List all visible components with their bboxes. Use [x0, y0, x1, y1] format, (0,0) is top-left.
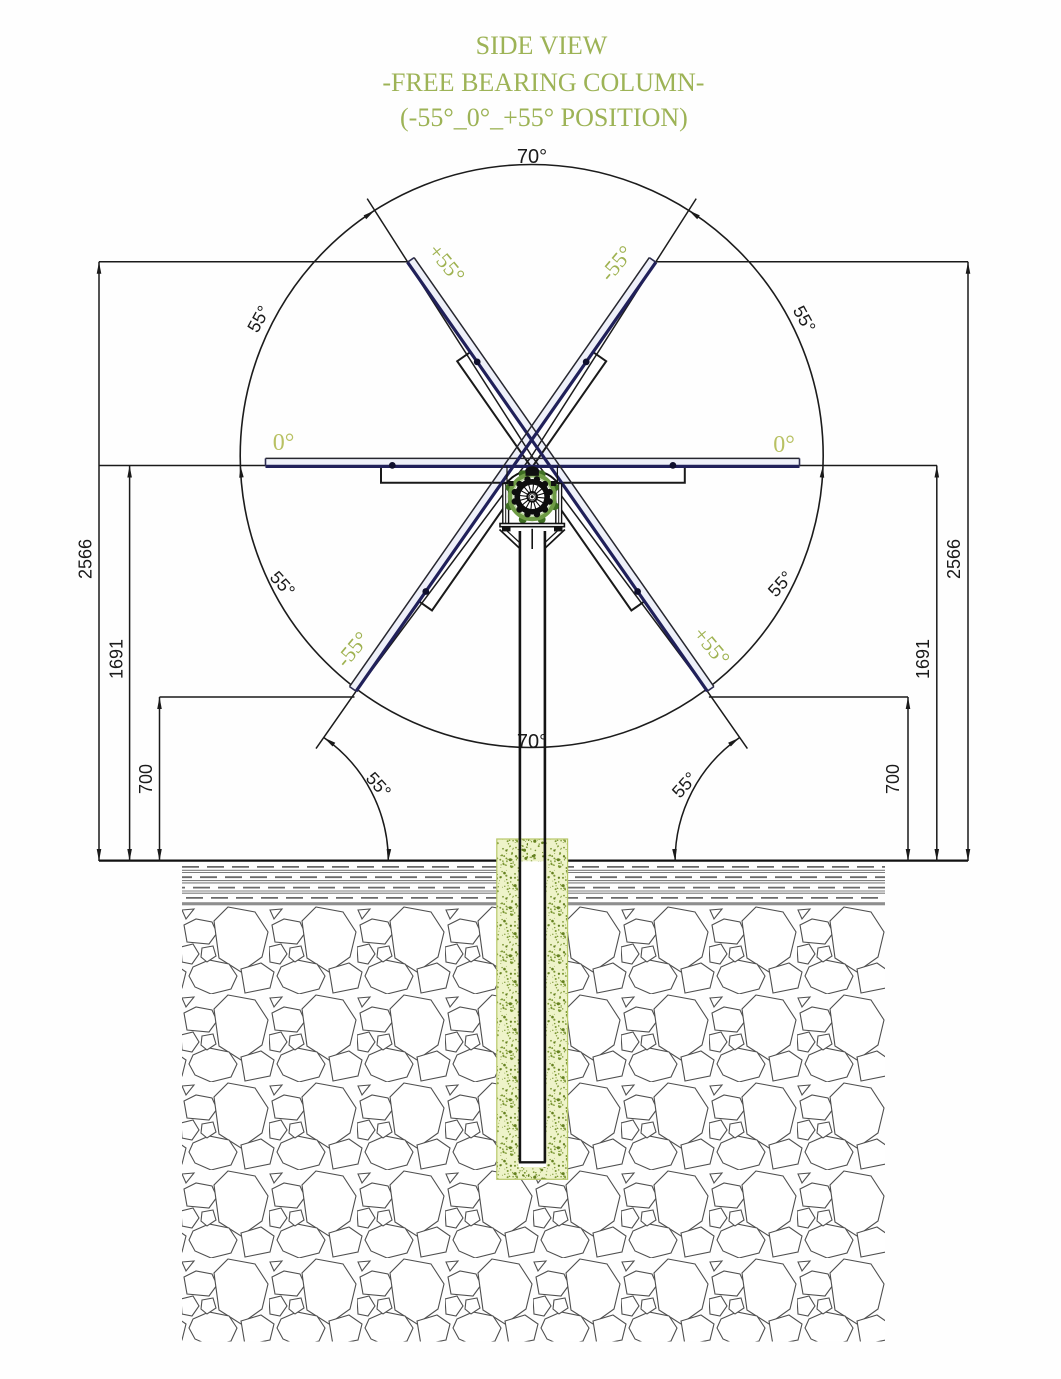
svg-text:2566: 2566 — [76, 539, 96, 579]
svg-text:SIDE VIEW: SIDE VIEW — [476, 31, 608, 60]
svg-text:0°: 0° — [773, 432, 795, 458]
svg-text:1691: 1691 — [107, 639, 127, 679]
svg-text:1691: 1691 — [913, 639, 933, 679]
svg-text:-FREE BEARING COLUMN-: -FREE BEARING COLUMN- — [382, 68, 704, 97]
svg-text:70°: 70° — [517, 731, 547, 753]
svg-text:0°: 0° — [273, 430, 295, 456]
svg-text:(-55°_0°_+55° POSITION): (-55°_0°_+55° POSITION) — [400, 103, 688, 132]
svg-text:700: 700 — [883, 764, 903, 794]
svg-text:70°: 70° — [517, 146, 547, 168]
svg-text:700: 700 — [136, 764, 156, 794]
svg-text:2566: 2566 — [944, 539, 964, 579]
